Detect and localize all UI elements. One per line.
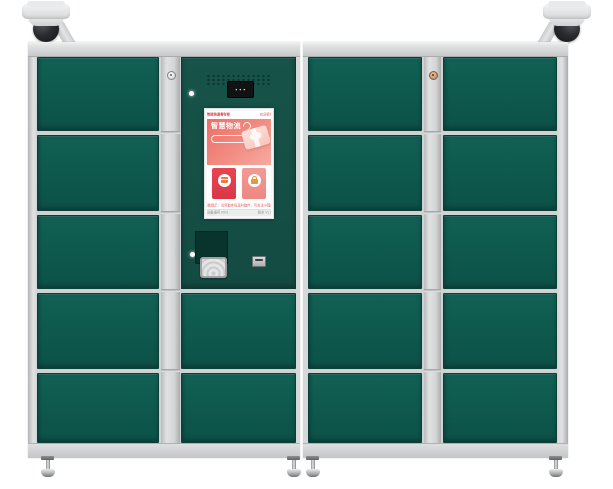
keyhole-lock[interactable]	[429, 71, 438, 80]
leveling-foot	[305, 456, 321, 482]
top-frame	[28, 42, 300, 57]
screen-footer: 设备编号 0001 版本 V1.0	[207, 209, 271, 216]
locker-door[interactable]	[443, 215, 557, 289]
locker-door[interactable]	[308, 135, 422, 211]
camera-cap	[548, 1, 586, 7]
smart-locker-product-image: ● ● ● 智能快递寄存柜 欢迎使用 智慧物流	[0, 0, 613, 489]
locker-door[interactable]	[37, 57, 159, 131]
screen-banner: 智慧物流 自助寄存 · 安全便捷 快速存件 · 安全保管 · 扫码取件 智能通知…	[207, 119, 271, 165]
nfc-reader-pad[interactable]	[200, 257, 227, 278]
deposit-icon	[218, 174, 231, 187]
screen-footer-left: 设备编号 0001	[207, 211, 228, 214]
lock-strip	[161, 57, 180, 443]
control-console: ● ● ● 智能快递寄存柜 欢迎使用 智慧物流	[181, 57, 296, 289]
camera-scanner-module: ● ● ●	[227, 81, 254, 98]
screen-header-title: 智能快递寄存柜	[207, 113, 230, 116]
locker-door[interactable]	[443, 135, 557, 211]
locker-door[interactable]	[443, 293, 557, 369]
locker-cabinet-left: ● ● ● 智能快递寄存柜 欢迎使用 智慧物流	[28, 42, 300, 458]
leveling-foot	[548, 456, 564, 482]
screen-header: 智能快递寄存柜 欢迎使用	[207, 111, 271, 119]
screen-notice: 温馨提示：请凭取件码及时取件，可关注小程序	[207, 202, 271, 209]
locker-door[interactable]	[37, 135, 159, 211]
locker-door[interactable]	[37, 293, 159, 369]
card-slot[interactable]	[252, 256, 266, 267]
pickup-icon	[248, 174, 261, 187]
keyhole-lock[interactable]	[167, 71, 176, 80]
frame-edge	[557, 57, 568, 443]
locker-door[interactable]	[181, 293, 296, 369]
door-column	[37, 57, 159, 443]
door-column	[308, 57, 422, 443]
screen-header-status: 欢迎使用	[260, 113, 271, 116]
frame-edge	[296, 57, 300, 443]
locker-door[interactable]	[181, 373, 296, 443]
locker-door[interactable]	[308, 215, 422, 289]
leveling-foot	[40, 456, 56, 482]
console-column: ● ● ● 智能快递寄存柜 欢迎使用 智慧物流	[181, 57, 296, 443]
top-frame	[303, 42, 568, 57]
frame-edge	[28, 57, 37, 443]
locker-door[interactable]	[308, 57, 422, 131]
locker-door[interactable]	[308, 293, 422, 369]
scanner-led-icons: ● ● ●	[235, 88, 246, 91]
locker-door[interactable]	[37, 373, 159, 443]
camera-cap	[27, 1, 65, 7]
locker-door[interactable]	[443, 57, 557, 131]
deposit-button[interactable]: 寄件	[212, 168, 236, 199]
banner-feature-list: 快速存件 · 安全保管 · 扫码取件 智能通知 · 自助操作 · 全天服务 一键…	[211, 150, 268, 165]
door-column	[443, 57, 557, 443]
base-frame	[303, 443, 568, 458]
screen-footer-right: 版本 V1.0	[258, 211, 271, 214]
lock-strip	[424, 57, 441, 443]
leveling-foot	[286, 456, 302, 482]
locker-door[interactable]	[308, 373, 422, 443]
locker-cabinet-right	[303, 42, 568, 458]
status-led	[189, 91, 194, 96]
locker-door[interactable]	[443, 373, 557, 443]
touchscreen[interactable]: 智能快递寄存柜 欢迎使用 智慧物流 自助寄存 · 安全便捷	[204, 108, 274, 219]
pickup-button[interactable]: 取件	[242, 168, 266, 199]
base-frame	[28, 443, 300, 458]
screen-actions: 寄件 取件	[207, 165, 271, 202]
locker-door[interactable]	[37, 215, 159, 289]
